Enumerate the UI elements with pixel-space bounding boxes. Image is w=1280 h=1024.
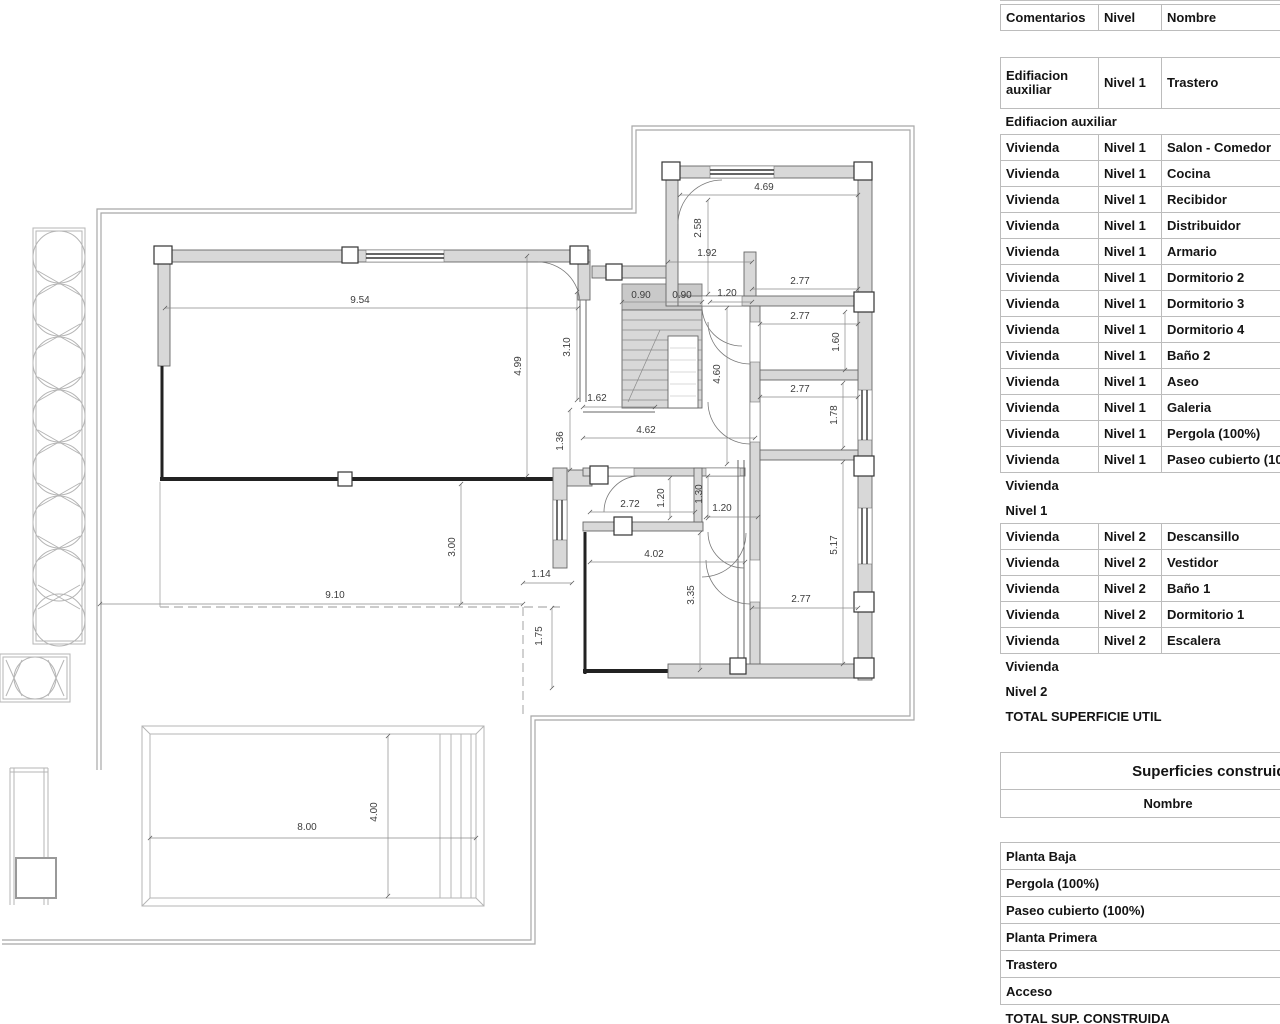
table-row: ViviendaNivel 1Armario xyxy=(1001,239,1280,265)
dim-label: 2.77 xyxy=(790,276,810,287)
dim-label: 1.60 xyxy=(831,332,842,352)
dim-label: 5.17 xyxy=(829,535,840,555)
table-row: ViviendaNivel 2Dormitorio 1 xyxy=(1001,602,1280,628)
table-row: ViviendaNivel 1Pergola (100%) xyxy=(1001,421,1280,447)
table-row: ViviendaNivel 1Baño 2 xyxy=(1001,343,1280,369)
access-structure xyxy=(10,768,56,905)
dim-label: 2.58 xyxy=(693,218,704,238)
table-row: ViviendaNivel 1Dormitorio 3 xyxy=(1001,291,1280,317)
table-row: Nivel 2 xyxy=(1001,679,1280,704)
setback-lines xyxy=(160,482,560,716)
table-row: TOTAL SUPERFICIE UTIL xyxy=(1001,704,1280,729)
floorplan-canvas: 9.544.993.101.621.364.620.900.901.201.92… xyxy=(0,0,990,1024)
table-row: Superficies construida xyxy=(1001,753,1280,790)
table-row: ViviendaNivel 1Dormitorio 4 xyxy=(1001,317,1280,343)
table-row: Pergola (100%) xyxy=(1001,870,1280,897)
dim-label: 4.99 xyxy=(513,356,524,376)
table-row: Edifiacion auxiliar xyxy=(1001,109,1280,135)
dim-label: 8.00 xyxy=(297,822,317,833)
site-boundary xyxy=(2,126,914,944)
dim-label: 1.20 xyxy=(656,488,667,508)
dim-label: 2.77 xyxy=(790,384,810,395)
dim-label: 1.20 xyxy=(712,503,732,514)
dim-label: 4.62 xyxy=(636,425,656,436)
dim-label: 0.90 xyxy=(631,290,651,301)
dim-label: 1.36 xyxy=(555,431,566,451)
dim-label: 4.02 xyxy=(644,549,664,560)
table-row: ComentariosNivelNombre xyxy=(1001,5,1280,31)
dim-label: 1.20 xyxy=(717,288,737,299)
table-row: ViviendaNivel 1Salon - Comedor xyxy=(1001,135,1280,161)
table-row: Paseo cubierto (100%) xyxy=(1001,897,1280,924)
pergola-trees xyxy=(0,228,85,702)
dim-label: 0.90 xyxy=(672,290,692,301)
built-areas-table: Superficies construidaNombrePlanta BajaP… xyxy=(1000,752,1280,1024)
dim-label: 4.00 xyxy=(369,802,380,822)
table-row: ViviendaNivel 2Descansillo xyxy=(1001,524,1280,550)
dim-label: 3.10 xyxy=(562,337,573,357)
cutoff-row-line xyxy=(1000,0,1280,1)
table-row: Edifiacion auxiliarNivel 1Trastero xyxy=(1001,58,1280,109)
dim-label: 9.10 xyxy=(325,590,345,601)
dim-label: 1.78 xyxy=(829,405,840,425)
dim-label: 3.00 xyxy=(447,537,458,557)
table-row: Nivel 1 xyxy=(1001,498,1280,524)
table-row: Acceso xyxy=(1001,978,1280,1005)
dim-label: 1.30 xyxy=(694,484,705,504)
table-row: Planta Primera xyxy=(1001,924,1280,951)
table-row: ViviendaNivel 1Recibidor xyxy=(1001,187,1280,213)
table-row: ViviendaNivel 1Paseo cubierto (100%) xyxy=(1001,447,1280,473)
table-row: ViviendaNivel 1Cocina xyxy=(1001,161,1280,187)
room-schedule-table: ComentariosNivelNombreEdifiacion auxilia… xyxy=(1000,4,1280,729)
dim-label: 1.14 xyxy=(531,569,551,580)
table-row: Trastero xyxy=(1001,951,1280,978)
schedule-panel: ComentariosNivelNombreEdifiacion auxilia… xyxy=(1000,0,1280,1024)
table-row: Nombre xyxy=(1001,790,1280,818)
table-row: Vivienda xyxy=(1001,654,1280,680)
table-row: ViviendaNivel 1Galeria xyxy=(1001,395,1280,421)
dim-label: 9.54 xyxy=(350,295,370,306)
table-row: ViviendaNivel 1Dormitorio 2 xyxy=(1001,265,1280,291)
dim-label: 1.75 xyxy=(534,626,545,646)
pool xyxy=(142,726,484,906)
table-row: Planta Baja xyxy=(1001,843,1280,870)
dim-label: 4.60 xyxy=(712,364,723,384)
table-row: ViviendaNivel 2Baño 1 xyxy=(1001,576,1280,602)
dim-label: 2.77 xyxy=(791,594,811,605)
dim-label: 2.72 xyxy=(620,499,640,510)
dim-label: 1.62 xyxy=(587,393,607,404)
table-row: TOTAL SUP. CONSTRUIDA xyxy=(1001,1005,1280,1024)
floorplan-svg: 9.544.993.101.621.364.620.900.901.201.92… xyxy=(0,0,990,1024)
table-row: ViviendaNivel 1Aseo xyxy=(1001,369,1280,395)
dim-label: 1.92 xyxy=(697,248,717,259)
table-row: ViviendaNivel 1Distribuidor xyxy=(1001,213,1280,239)
table-row: ViviendaNivel 2Vestidor xyxy=(1001,550,1280,576)
table-row: ViviendaNivel 2Escalera xyxy=(1001,628,1280,654)
table-row xyxy=(1001,31,1280,58)
dim-label: 2.77 xyxy=(790,311,810,322)
dim-label: 4.69 xyxy=(754,182,774,193)
table-row xyxy=(1001,818,1280,843)
dim-label: 3.35 xyxy=(686,585,697,605)
built-areas-wrap: Superficies construidaNombrePlanta BajaP… xyxy=(1000,752,1280,1024)
table-row: Vivienda xyxy=(1001,473,1280,499)
building-walls xyxy=(154,162,874,680)
